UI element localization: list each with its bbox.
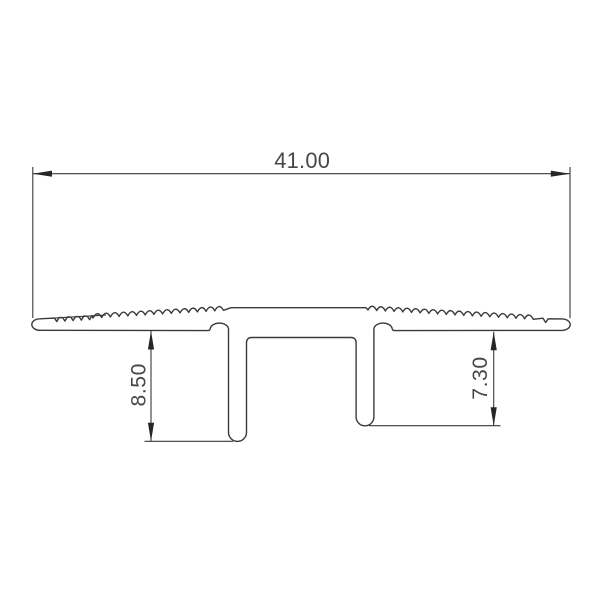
svg-text:41.00: 41.00	[274, 148, 330, 173]
svg-text:7.30: 7.30	[469, 356, 492, 399]
svg-text:8.50: 8.50	[128, 363, 151, 406]
